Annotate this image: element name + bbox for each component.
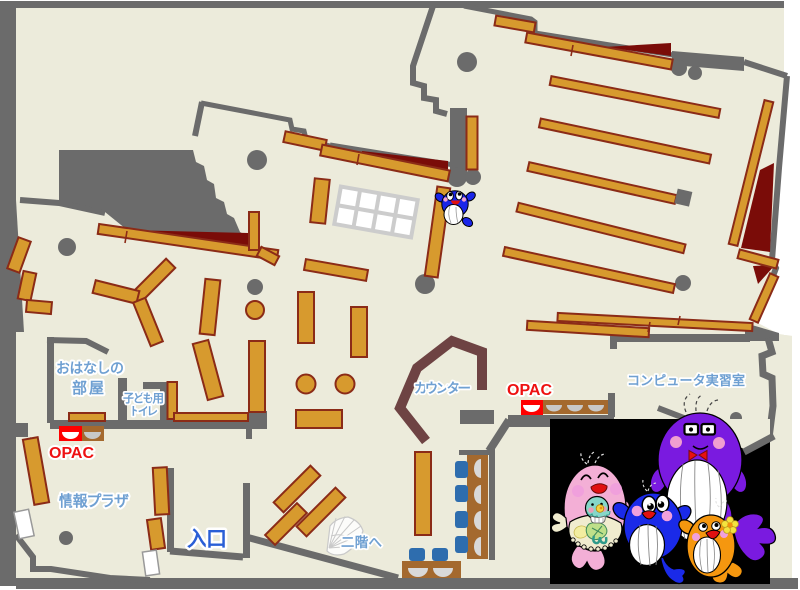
svg-text:おはなしの: おはなしの — [56, 360, 124, 376]
svg-text:トイレ: トイレ — [129, 405, 158, 418]
svg-text:二階へ: 二階へ — [341, 534, 383, 550]
svg-text:カウンター: カウンター — [414, 381, 471, 396]
svg-text:部屋: 部屋 — [72, 379, 104, 397]
svg-text:OPAC: OPAC — [49, 445, 94, 462]
svg-text:OPAC: OPAC — [507, 382, 552, 399]
svg-text:情報プラザ: 情報プラザ — [59, 492, 129, 510]
svg-text:コンピュータ実習室: コンピュータ実習室 — [627, 373, 745, 388]
svg-text:入口: 入口 — [187, 528, 227, 551]
svg-text:子ども用: 子ども用 — [123, 392, 164, 405]
